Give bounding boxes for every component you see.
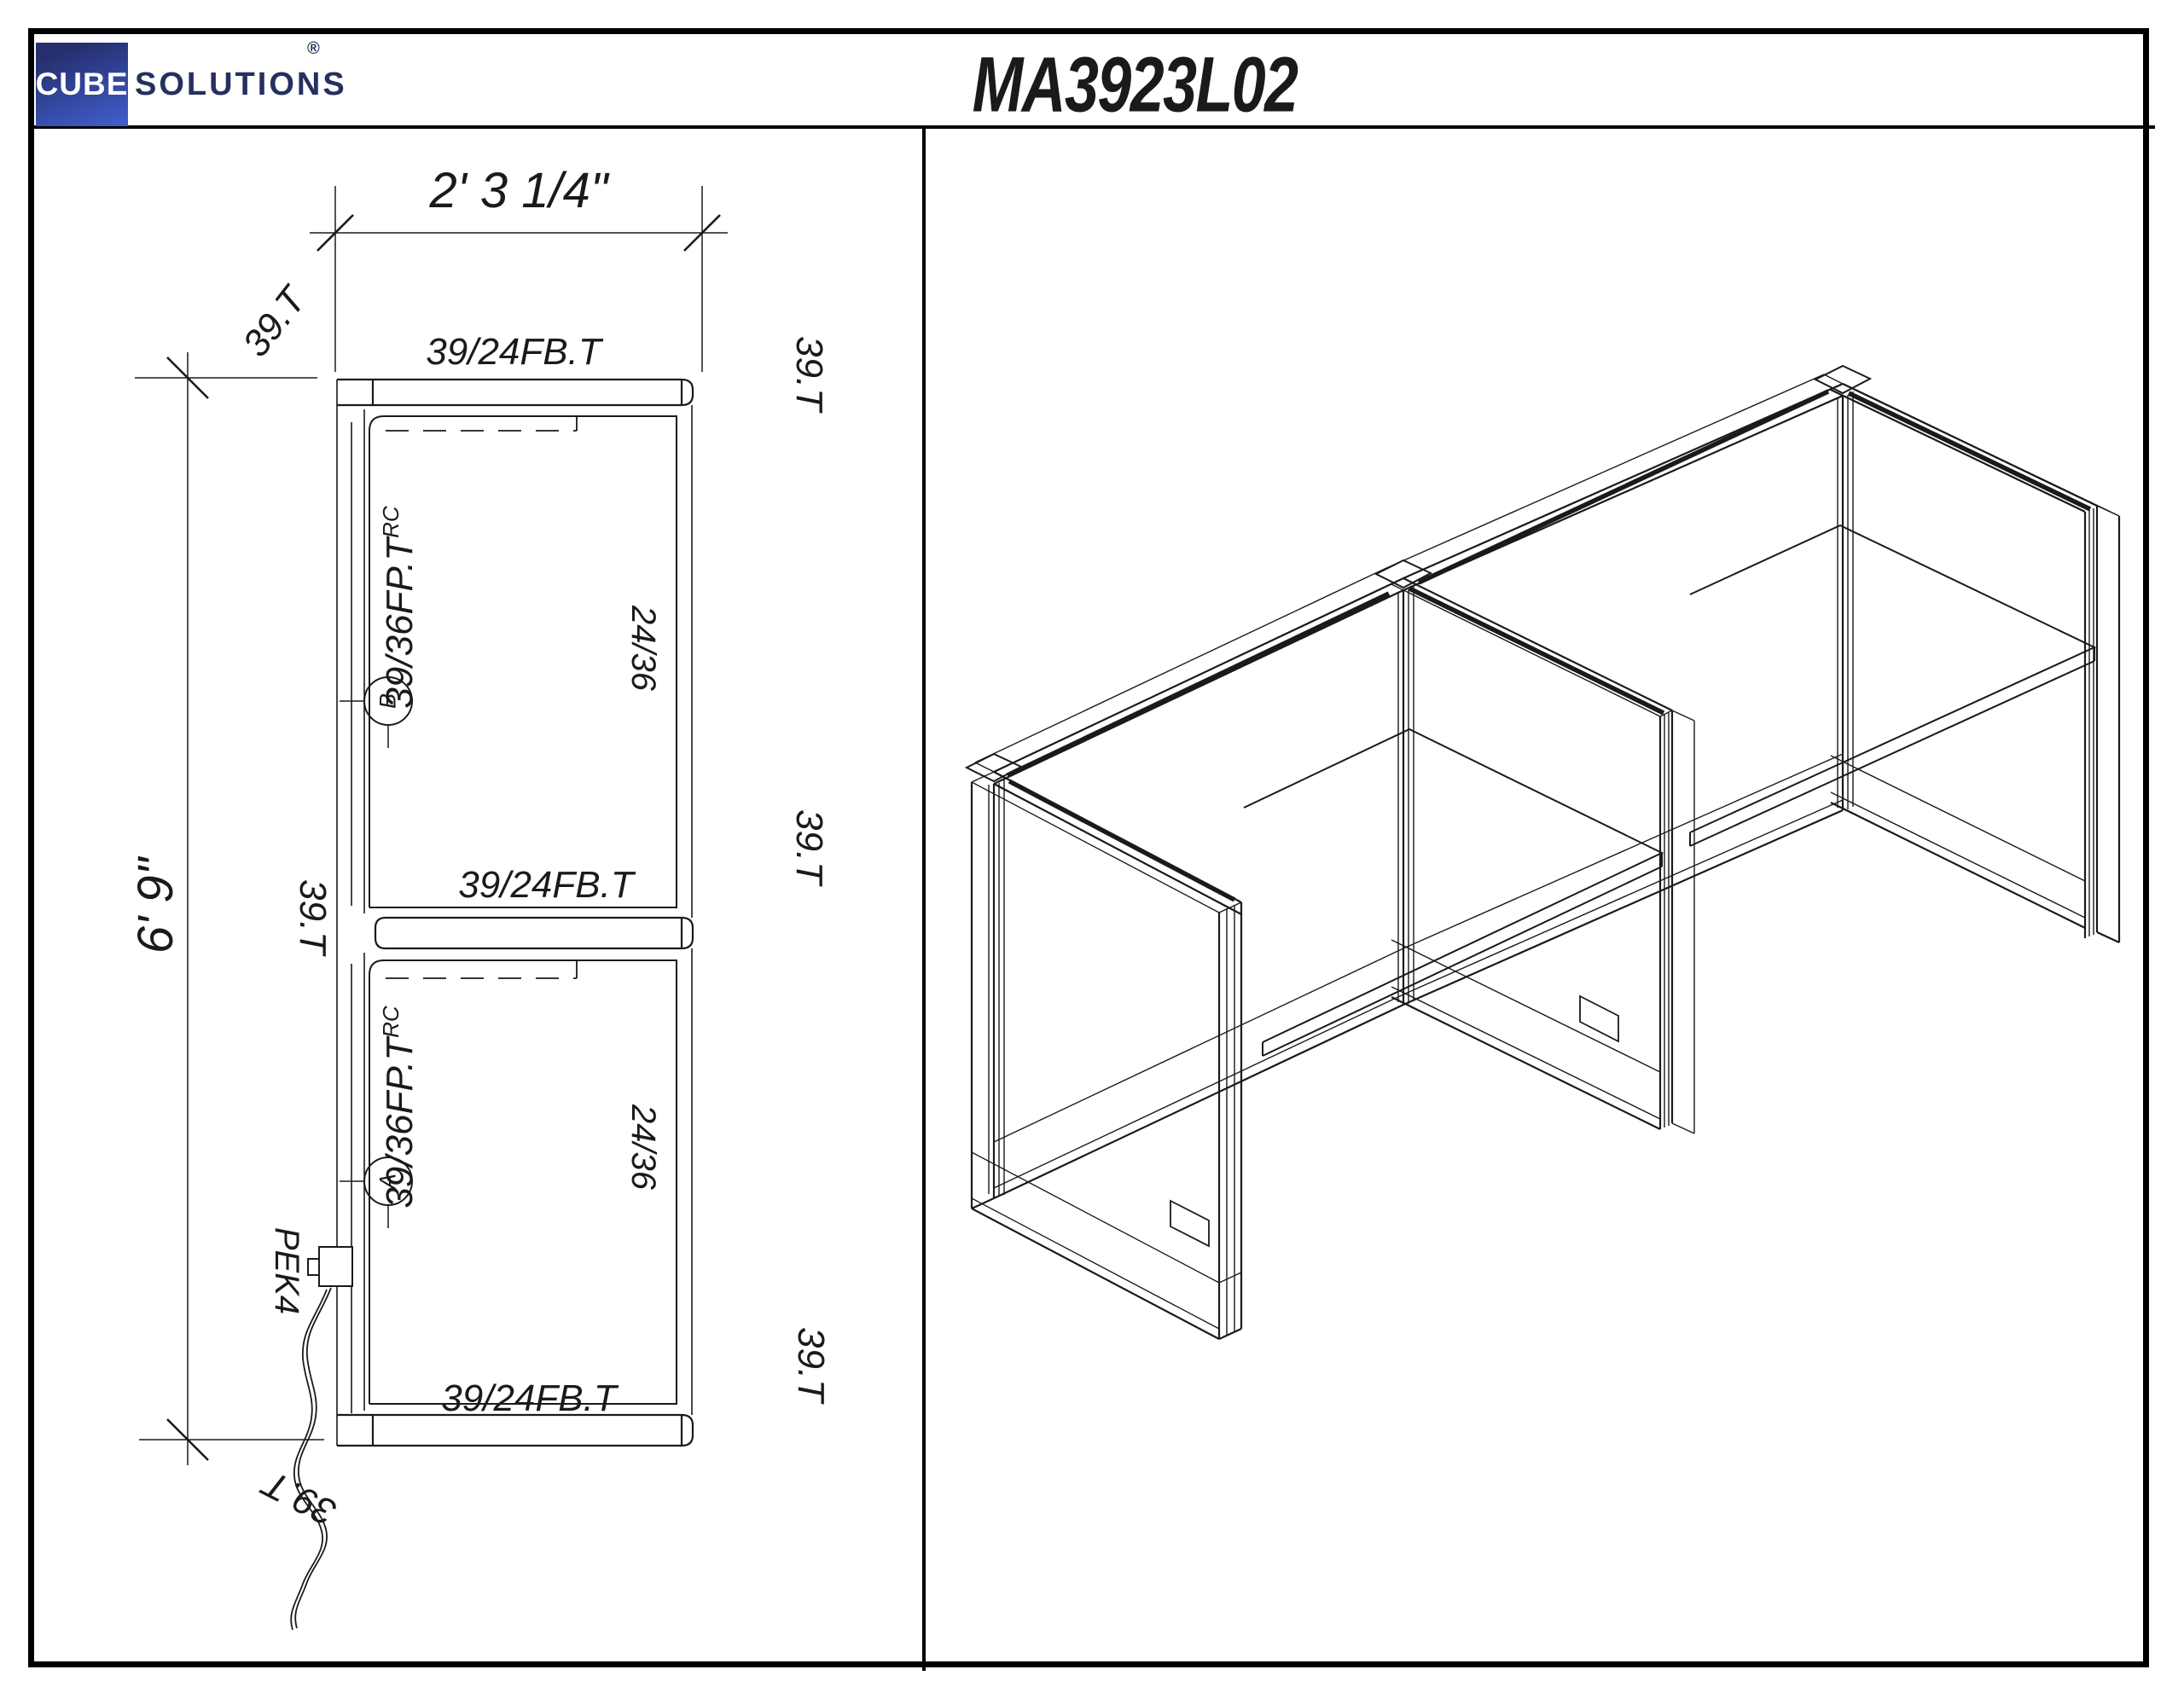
iso-midpanel-top	[1403, 578, 1672, 710]
panel-label-top: 39/24FB.T	[426, 333, 601, 371]
tile-tag-right-mid: 39.T	[790, 809, 828, 884]
plan-dimension-lines	[135, 186, 728, 1465]
iso-post-mid	[1398, 586, 1414, 1004]
marker-letter-b: B	[377, 693, 400, 709]
drawing-canvas	[0, 0, 2184, 1687]
iso-midpanel-rail-dark	[1409, 588, 1664, 713]
plan-view	[135, 186, 728, 1630]
iso-leftpanel-trim	[972, 1152, 1241, 1329]
iso-leftpanel-grooves	[1227, 905, 1234, 1335]
iso-backwall-base-trim	[994, 754, 1843, 1188]
tile-tag-right-lower: 39.T	[792, 1327, 829, 1402]
tile-tag-left-mid: 39.T	[293, 879, 331, 954]
panel-label-mid: 39/24FB.T	[458, 867, 633, 904]
iso-rightpanel-rail-dark	[1849, 393, 2090, 509]
spine-panel-label-upper: 39/36FP.TRC	[380, 506, 419, 708]
dim-height-label: 6' 9"	[131, 858, 181, 954]
drawing-sheet: CUBE SOLUTIONS ® MA3923L02	[0, 0, 2184, 1687]
iso-rightpanel-cap	[1843, 384, 2119, 516]
plan-bottom-panel	[337, 1415, 693, 1446]
iso-backwall-base	[994, 810, 1843, 1198]
iso-midpanel-grooves	[1664, 713, 1669, 1128]
spine-panel-text-upper: 39/36FP.T	[379, 538, 421, 709]
plan-top-panel	[337, 380, 693, 405]
iso-outlet-mid	[1580, 996, 1618, 1041]
plan-mid-panel	[375, 918, 693, 948]
power-kit-label: PEK4	[270, 1227, 304, 1314]
panel-label-bottom: 39/24FB.T	[441, 1380, 616, 1417]
iso-leftpanel-edges	[972, 782, 1241, 1339]
iso-midpanel-edges	[1391, 710, 1672, 1129]
iso-rightpanel-trim	[1831, 756, 2085, 918]
surface-label-upper: 24/36	[626, 606, 660, 691]
dim-width-label: 2' 3 1/4"	[429, 166, 607, 216]
iso-desk-right	[1690, 525, 2094, 846]
iso-rightpanel-grooves	[2089, 508, 2094, 936]
spine-panel-sup-lower: RC	[378, 1006, 404, 1038]
iso-outlet-left	[1170, 1201, 1209, 1246]
iso-post-right	[1838, 391, 1853, 809]
surface-label-lower: 24/36	[626, 1104, 660, 1190]
spine-panel-sup-upper: RC	[378, 506, 404, 538]
iso-desk-left	[1244, 729, 1662, 1056]
iso-midpanel-trim	[1391, 940, 1660, 1119]
marker-letter-a: A	[377, 1174, 400, 1189]
isometric-view	[967, 366, 2119, 1339]
plan-power-cable-b	[295, 1288, 331, 1628]
iso-leftpanel-rail-dark	[1009, 781, 1234, 900]
tile-tag-right-upper: 39.T	[790, 336, 828, 411]
plan-power-box	[308, 1247, 352, 1286]
plan-dimension-ticks	[167, 215, 720, 1460]
iso-post-left	[989, 780, 1004, 1196]
